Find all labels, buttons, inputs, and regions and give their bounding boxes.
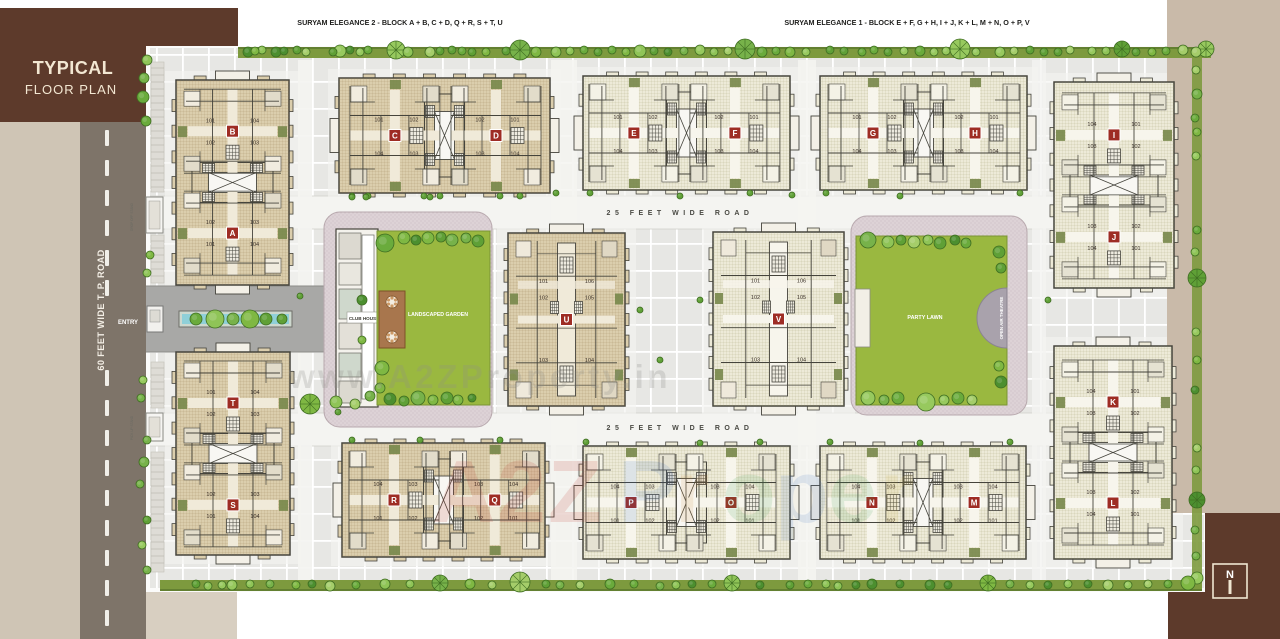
svg-text:102: 102 [409,118,418,124]
svg-text:r: r [880,442,914,541]
svg-text:FLOOR PLAN: FLOOR PLAN [25,82,117,97]
svg-text:104: 104 [749,149,758,155]
svg-text:M: M [971,499,978,508]
svg-text:101: 101 [1130,512,1139,518]
svg-text:ENTRY: ENTRY [118,320,138,326]
svg-text:102: 102 [1131,224,1140,230]
svg-text:102: 102 [648,115,657,121]
svg-text:104: 104 [613,149,622,155]
svg-text:B: B [230,127,236,136]
svg-text:104: 104 [1086,512,1095,518]
svg-text:104: 104 [510,152,519,158]
svg-text:102: 102 [475,118,484,124]
svg-text:104: 104 [374,152,383,158]
svg-text:103: 103 [648,149,657,155]
svg-text:104: 104 [1087,122,1096,128]
svg-text:103: 103 [250,412,259,418]
svg-text:101: 101 [206,118,215,124]
svg-text:V: V [776,315,782,324]
svg-text:103: 103 [408,482,417,488]
svg-text:2: 2 [497,442,546,541]
svg-text:SURYAM ELEGANCE 1 - BLOCK E +: SURYAM ELEGANCE 1 - BLOCK E + F, G + H, … [784,18,1030,27]
svg-text:101: 101 [539,279,548,285]
svg-text:S: S [230,501,236,510]
svg-text:103: 103 [1087,224,1096,230]
svg-text:101: 101 [510,118,519,124]
svg-text:103: 103 [250,220,259,226]
svg-text:104: 104 [797,358,806,364]
svg-text:A: A [432,442,496,541]
svg-text:103: 103 [475,152,484,158]
svg-text:r: r [675,442,709,541]
svg-text:104: 104 [250,514,259,520]
svg-text:U: U [564,316,570,325]
svg-text:104: 104 [988,485,997,491]
svg-text:102: 102 [710,519,719,525]
svg-text:60 FEET WIDE T. P. ROAD: 60 FEET WIDE T. P. ROAD [96,249,106,370]
svg-text:N: N [1226,569,1234,581]
svg-text:101: 101 [1131,122,1140,128]
svg-text:103: 103 [409,152,418,158]
svg-text:G: G [870,129,876,138]
svg-text:102: 102 [408,516,417,522]
svg-text:104: 104 [250,118,259,124]
svg-text:101: 101 [373,516,382,522]
svg-text:TYPICAL: TYPICAL [33,58,114,78]
svg-text:104: 104 [1086,389,1095,395]
svg-text:OPEN AIR THEATRE: OPEN AIR THEATRE [999,297,1004,340]
svg-text:102: 102 [1130,411,1139,417]
svg-text:F: F [732,129,737,138]
svg-text:106: 106 [585,279,594,285]
svg-text:L: L [1111,499,1116,508]
svg-text:103: 103 [953,485,962,491]
svg-text:101: 101 [206,242,215,248]
svg-text:103: 103 [887,149,896,155]
svg-text:104: 104 [852,149,861,155]
svg-text:e: e [828,442,877,541]
svg-text:Z: Z [548,442,602,541]
svg-text:102: 102 [539,296,548,302]
svg-text:C: C [392,132,398,141]
svg-text:101: 101 [988,519,997,525]
svg-text:D: D [493,132,499,141]
svg-text:P: P [618,442,677,541]
svg-text:LANDSCAPED GARDEN: LANDSCAPED GARDEN [408,312,468,318]
svg-text:102: 102 [751,295,760,301]
svg-text:101: 101 [989,115,998,121]
svg-text:K: K [1110,398,1116,407]
svg-text:E: E [631,129,637,138]
svg-text:102: 102 [1131,144,1140,150]
svg-text:103: 103 [714,149,723,155]
svg-text:102: 102 [206,220,215,226]
svg-text:p: p [775,442,829,541]
svg-text:101: 101 [613,115,622,121]
svg-text:J: J [1112,233,1116,242]
svg-text:PICK UP STAND: PICK UP STAND [130,415,134,440]
svg-text:o: o [722,442,776,541]
svg-text:102: 102 [206,140,215,146]
svg-text:PARTY LAWN: PARTY LAWN [907,315,942,321]
svg-text:102: 102 [206,492,215,498]
svg-text:105: 105 [585,296,594,302]
svg-text:25 FEET WIDE ROAD: 25 FEET WIDE ROAD [607,210,754,217]
svg-text:DROP OFF STAND: DROP OFF STAND [130,202,134,231]
svg-text:104: 104 [250,242,259,248]
svg-text:A: A [230,229,236,238]
svg-text:103: 103 [250,140,259,146]
svg-text:101: 101 [751,278,760,284]
svg-text:104: 104 [250,390,259,396]
svg-text:102: 102 [887,115,896,121]
svg-text:25 FEET WIDE ROAD: 25 FEET WIDE ROAD [607,425,754,432]
svg-text:101: 101 [1131,246,1140,252]
svg-text:SURYAM ELEGANCE 2 - BLOCK A +: SURYAM ELEGANCE 2 - BLOCK A + B, C + D, … [297,18,502,27]
svg-text:T: T [231,399,236,408]
svg-text:CLUB HOUSE: CLUB HOUSE [349,316,379,321]
svg-text:101: 101 [206,514,215,520]
svg-text:102: 102 [1130,490,1139,496]
svg-text:104: 104 [373,482,382,488]
svg-text:www.A2ZProperty.in: www.A2ZProperty.in [288,358,671,395]
svg-text:103: 103 [710,485,719,491]
svg-text:103: 103 [954,149,963,155]
svg-text:H: H [972,129,978,138]
svg-text:101: 101 [852,115,861,121]
svg-text:105: 105 [797,295,806,301]
svg-text:101: 101 [749,115,758,121]
svg-text:I: I [1113,131,1115,140]
svg-text:103: 103 [250,492,259,498]
svg-text:104: 104 [1087,246,1096,252]
svg-text:103: 103 [1086,490,1095,496]
svg-text:102: 102 [714,115,723,121]
svg-text:106: 106 [797,278,806,284]
svg-text:102: 102 [953,519,962,525]
svg-text:104: 104 [989,149,998,155]
svg-text:R: R [391,496,397,505]
svg-text:102: 102 [954,115,963,121]
svg-text:103: 103 [1086,411,1095,417]
svg-text:103: 103 [751,358,760,364]
svg-text:102: 102 [206,412,215,418]
svg-text:101: 101 [206,390,215,396]
svg-text:101: 101 [1130,389,1139,395]
svg-text:101: 101 [374,118,383,124]
svg-text:103: 103 [1087,144,1096,150]
